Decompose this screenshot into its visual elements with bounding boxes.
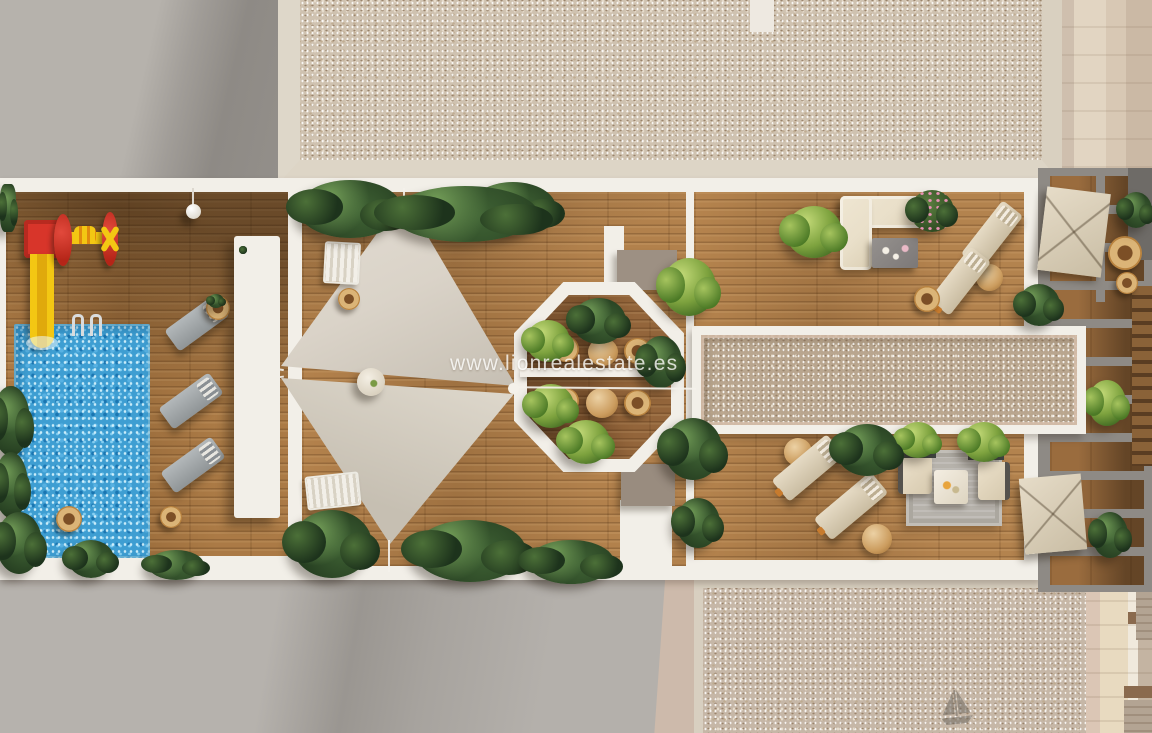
sail-anchor — [508, 383, 519, 394]
parasol — [1037, 186, 1111, 277]
plant — [786, 206, 842, 258]
window-bar — [1124, 686, 1152, 698]
octagon-connector — [620, 500, 672, 570]
plant — [528, 540, 614, 584]
pergola-slat-structure — [234, 236, 280, 518]
plant — [676, 498, 720, 548]
round-table — [357, 368, 385, 396]
sailboat-icon — [932, 684, 980, 732]
plant — [528, 384, 574, 428]
slide-chute — [30, 254, 54, 348]
balcony-chair — [1108, 236, 1142, 270]
side-table — [160, 506, 182, 528]
brick-block — [1136, 592, 1152, 640]
plant — [292, 510, 372, 578]
stairs — [1132, 286, 1152, 466]
gazebo-table — [586, 388, 618, 418]
pool-ladder — [90, 314, 102, 336]
spinner-hub — [74, 226, 96, 244]
plant — [662, 258, 716, 316]
snack-table — [934, 470, 968, 504]
hedge-corner — [0, 184, 16, 232]
roof-top-gravel — [278, 0, 1062, 184]
deck-chair — [304, 471, 361, 510]
plant — [148, 550, 204, 580]
plant — [898, 422, 938, 458]
plant — [1092, 512, 1128, 558]
side-table — [56, 506, 82, 532]
splash-area — [26, 336, 58, 350]
wall-top-right — [1062, 0, 1152, 186]
plant — [1120, 192, 1152, 228]
roof-bottom-gravel — [694, 578, 1086, 733]
plant — [962, 422, 1006, 462]
roof-bottom-left-gray — [0, 572, 676, 733]
roof-top-left-gray — [0, 0, 304, 186]
balcony-chair — [1116, 272, 1138, 294]
parasol — [1019, 473, 1087, 554]
plant — [392, 186, 538, 242]
plant — [562, 420, 610, 464]
roof-divider-notch — [750, 0, 774, 32]
plant — [572, 298, 626, 344]
walkway-gravel — [701, 335, 1077, 425]
rooftop-terrace-render: www.lionrealestate.es — [0, 0, 1152, 733]
ball-lamp — [186, 204, 201, 219]
plant — [68, 540, 114, 578]
spinner-disc — [54, 214, 72, 266]
side-table — [914, 286, 940, 312]
brick-block — [1124, 700, 1152, 733]
plant — [1088, 380, 1126, 426]
gazebo-chair — [624, 390, 651, 416]
pool-ladder — [72, 314, 84, 336]
watermark-text: www.lionrealestate.es — [450, 352, 678, 376]
plant — [0, 512, 42, 574]
plant — [414, 520, 526, 582]
side-table — [862, 524, 892, 554]
plant — [208, 294, 224, 308]
sail-guy-line — [388, 540, 390, 572]
armchair — [978, 462, 1010, 500]
coffee-table — [872, 238, 918, 268]
armchair — [898, 456, 932, 494]
plant — [1018, 284, 1060, 326]
deck-chair — [323, 241, 361, 285]
plant — [664, 418, 722, 480]
side-table — [338, 288, 360, 310]
flowering-plant — [910, 190, 954, 232]
plant — [836, 424, 898, 476]
